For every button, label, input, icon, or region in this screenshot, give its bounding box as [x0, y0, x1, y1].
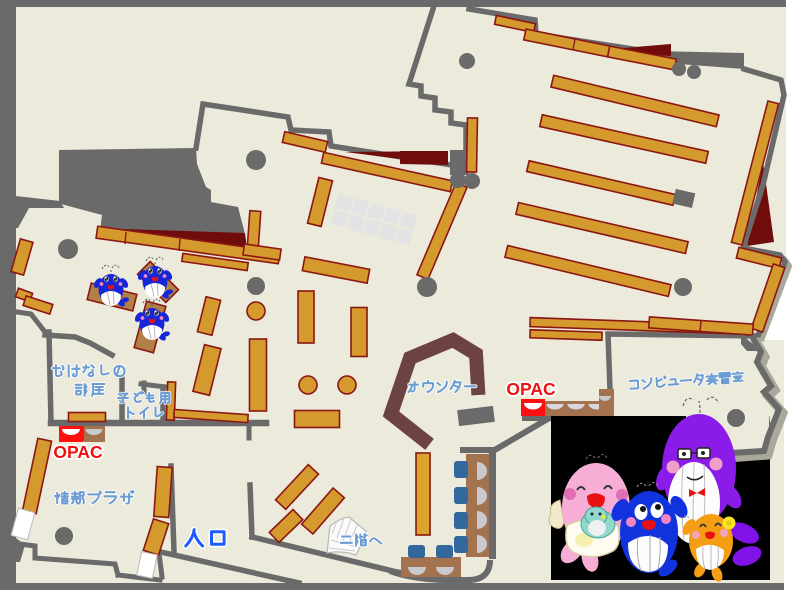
svg-text:OPAC: OPAC	[506, 379, 556, 399]
svg-text:OPAC: OPAC	[53, 442, 103, 462]
